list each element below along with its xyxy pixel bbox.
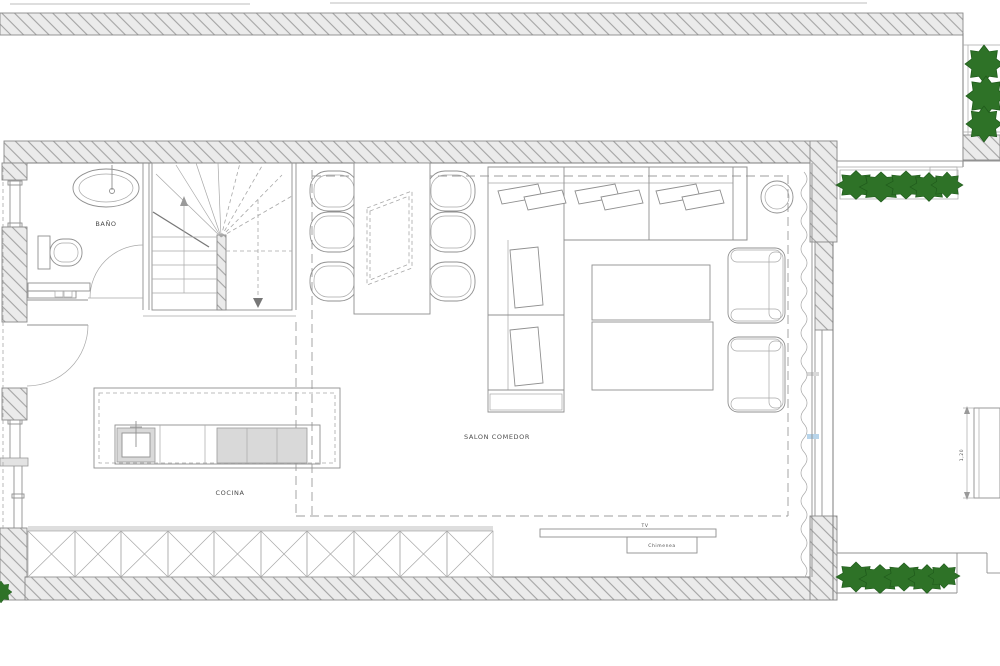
kitchen: COCINA	[94, 388, 340, 497]
terrace: 1,20	[836, 161, 1000, 593]
floor-plan-drawing: BAÑO	[0, 0, 1000, 666]
entrance-door	[27, 325, 88, 386]
window-sill	[0, 458, 28, 466]
living-dining-label: SALON COMEDOR	[464, 433, 530, 441]
street-wall-band	[0, 13, 963, 35]
cabinet-run	[28, 526, 493, 577]
kitchen-cooktop	[217, 428, 307, 463]
left-window-3	[12, 466, 24, 528]
dining-set	[310, 163, 475, 314]
glazing-tick-blue	[807, 434, 819, 439]
glazing-tick	[807, 372, 819, 376]
bathroom-sink	[73, 165, 139, 207]
bathroom-cabinet	[28, 283, 90, 298]
stair-down-arrow	[253, 200, 263, 308]
sofa-zone: SALON COMEDOR	[464, 167, 793, 441]
curtain-line	[801, 172, 807, 578]
terrace-hedge-top	[836, 171, 963, 202]
kitchen-label: COCINA	[215, 489, 244, 497]
left-wall-pier	[2, 227, 27, 322]
bathroom-door	[88, 245, 143, 298]
stair-spine-wall	[217, 235, 226, 310]
left-wall-pier	[2, 388, 27, 420]
right-wall-top-pier	[810, 141, 837, 242]
coffee-tables	[592, 265, 713, 390]
staircase	[143, 163, 296, 316]
armchair	[728, 337, 785, 412]
bathroom-toilet	[38, 236, 82, 269]
terrace-hedge-bottom	[836, 562, 960, 593]
stair-winder-lines	[153, 163, 292, 247]
tv-console: TV Chimenea	[540, 523, 716, 553]
terrace-table	[974, 408, 1000, 498]
right-wall-mid-pier	[815, 242, 833, 330]
left-wall-pier	[2, 163, 27, 180]
dimension-text: 1,20	[959, 449, 965, 461]
dining-table	[354, 163, 430, 314]
top-wall	[4, 141, 837, 163]
tv-label: TV	[640, 523, 648, 529]
armchair	[728, 248, 785, 323]
stair-up-arrow	[180, 196, 188, 293]
left-window-2	[8, 420, 22, 458]
tv-unit-box-label: Chimenea	[648, 543, 676, 549]
floor-plan-canvas: BAÑO	[0, 0, 1000, 666]
street-planter-bushes	[965, 45, 1000, 142]
dimension-line: 1,20	[959, 406, 974, 500]
bathroom-label: BAÑO	[95, 219, 116, 228]
bush-icon	[966, 106, 1000, 142]
bush-icon	[965, 45, 1000, 83]
bathroom: BAÑO	[27, 163, 149, 310]
kitchen-sink	[117, 421, 155, 462]
left-window-1	[8, 181, 22, 227]
cabinet-x-boxes	[28, 531, 493, 577]
kitchen-island	[94, 388, 340, 468]
bottom-wall	[25, 577, 837, 600]
